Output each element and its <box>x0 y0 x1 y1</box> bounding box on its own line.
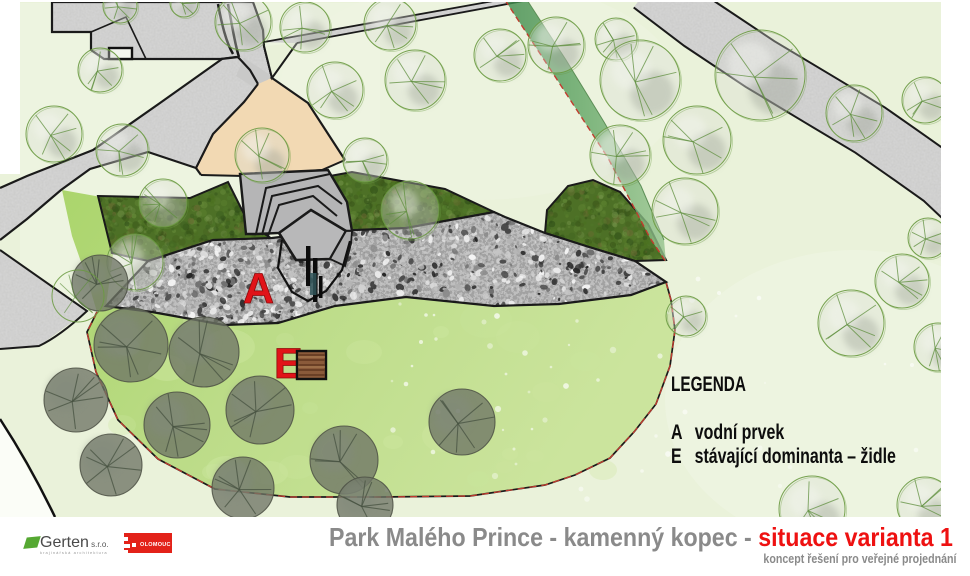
svg-text:A: A <box>243 265 274 313</box>
